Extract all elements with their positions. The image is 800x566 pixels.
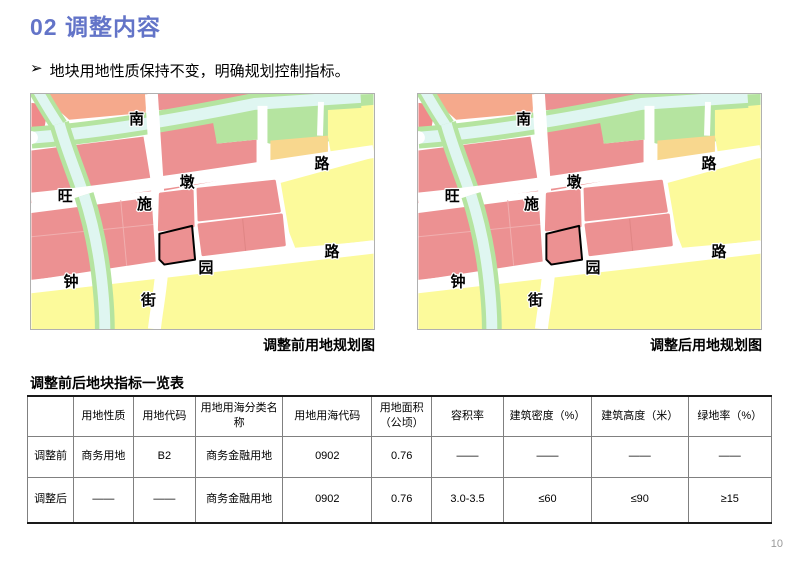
map-after-caption: 调整后用地规划图 (417, 335, 762, 355)
cell: ≤90 (591, 477, 688, 523)
indicator-table: 用地性质 用地代码 用地用海分类名称 用地用海代码 用地面积（公顷） 容积率 建… (27, 395, 772, 524)
landuse-map-after (417, 93, 762, 330)
cell: 0.76 (372, 436, 432, 477)
table-row-after: 调整后 —— —— 商务金融用地 0902 0.76 3.0-3.5 ≤60 ≤… (28, 477, 772, 523)
table-title: 调整前后地块指标一览表 (30, 373, 184, 393)
header-sea-class-name: 用地用海分类名称 (196, 396, 283, 436)
road-label-shi: 施 (137, 195, 152, 213)
header-green-ratio: 绿地率（%） (688, 396, 771, 436)
road-label-lu-se: 路 (324, 243, 339, 261)
subject-parcel-outline (159, 226, 195, 265)
cell: 0902 (283, 477, 372, 523)
slide: 02 调整内容 ➢ 地块用地性质保持不变，明确规划控制指标。 (0, 0, 800, 566)
cell: —— (431, 436, 503, 477)
road-label-dun: 墩 (180, 173, 195, 191)
bullet-text: 地块用地性质保持不变，明确规划控制指标。 (50, 60, 350, 81)
cell: 商务用地 (74, 436, 134, 477)
row-label: 调整前 (28, 436, 74, 477)
map-before: 南 施 街 旺 墩 路 钟 园 路 调整前用地规划图 (30, 93, 375, 355)
page-title: 02 调整内容 (30, 8, 161, 42)
road-label-zhong: 钟 (64, 272, 79, 290)
cell: 商务金融用地 (196, 477, 283, 523)
header-building-density: 建筑密度（%） (504, 396, 592, 436)
road-label-jie: 街 (140, 291, 156, 309)
road-label-wang: 旺 (58, 188, 73, 205)
header-building-height: 建筑高度（米） (591, 396, 688, 436)
map-after: 调整后用地规划图 (417, 93, 762, 355)
cell: ≤60 (504, 477, 592, 523)
cell: B2 (133, 436, 195, 477)
header-landuse-nature: 用地性质 (74, 396, 134, 436)
cell: 3.0-3.5 (431, 477, 503, 523)
cell: —— (133, 477, 195, 523)
table-row-before: 调整前 商务用地 B2 商务金融用地 0902 0.76 —— —— —— —— (28, 436, 772, 477)
map-before-caption: 调整前用地规划图 (30, 335, 375, 355)
bullet-arrow-icon: ➢ (30, 60, 43, 78)
road-label-nan: 南 (129, 110, 144, 128)
parcel-north-of-subject (159, 190, 193, 230)
road-label-lu-ne: 路 (315, 154, 330, 172)
cell: 0.76 (372, 477, 432, 523)
bullet-line: ➢ 地块用地性质保持不变，明确规划控制指标。 (30, 60, 350, 81)
row-label: 调整后 (28, 477, 74, 523)
cell: 商务金融用地 (196, 436, 283, 477)
cell: —— (504, 436, 592, 477)
road-culdesac-stem (320, 102, 321, 136)
table-header-row: 用地性质 用地代码 用地用海分类名称 用地用海代码 用地面积（公顷） 容积率 建… (28, 396, 772, 436)
header-sea-code: 用地用海代码 (283, 396, 372, 436)
header-far: 容积率 (431, 396, 503, 436)
landuse-map-before: 南 施 街 旺 墩 路 钟 园 路 (30, 93, 375, 330)
header-land-area: 用地面积（公顷） (372, 396, 432, 436)
cell: ≥15 (688, 477, 771, 523)
header-blank (28, 396, 74, 436)
cell: —— (74, 477, 134, 523)
cell: 0902 (283, 436, 372, 477)
cell: —— (688, 436, 771, 477)
header-landuse-code: 用地代码 (133, 396, 195, 436)
cell: —— (591, 436, 688, 477)
page-number: 10 (771, 538, 783, 550)
road-label-yuan: 园 (199, 260, 214, 277)
